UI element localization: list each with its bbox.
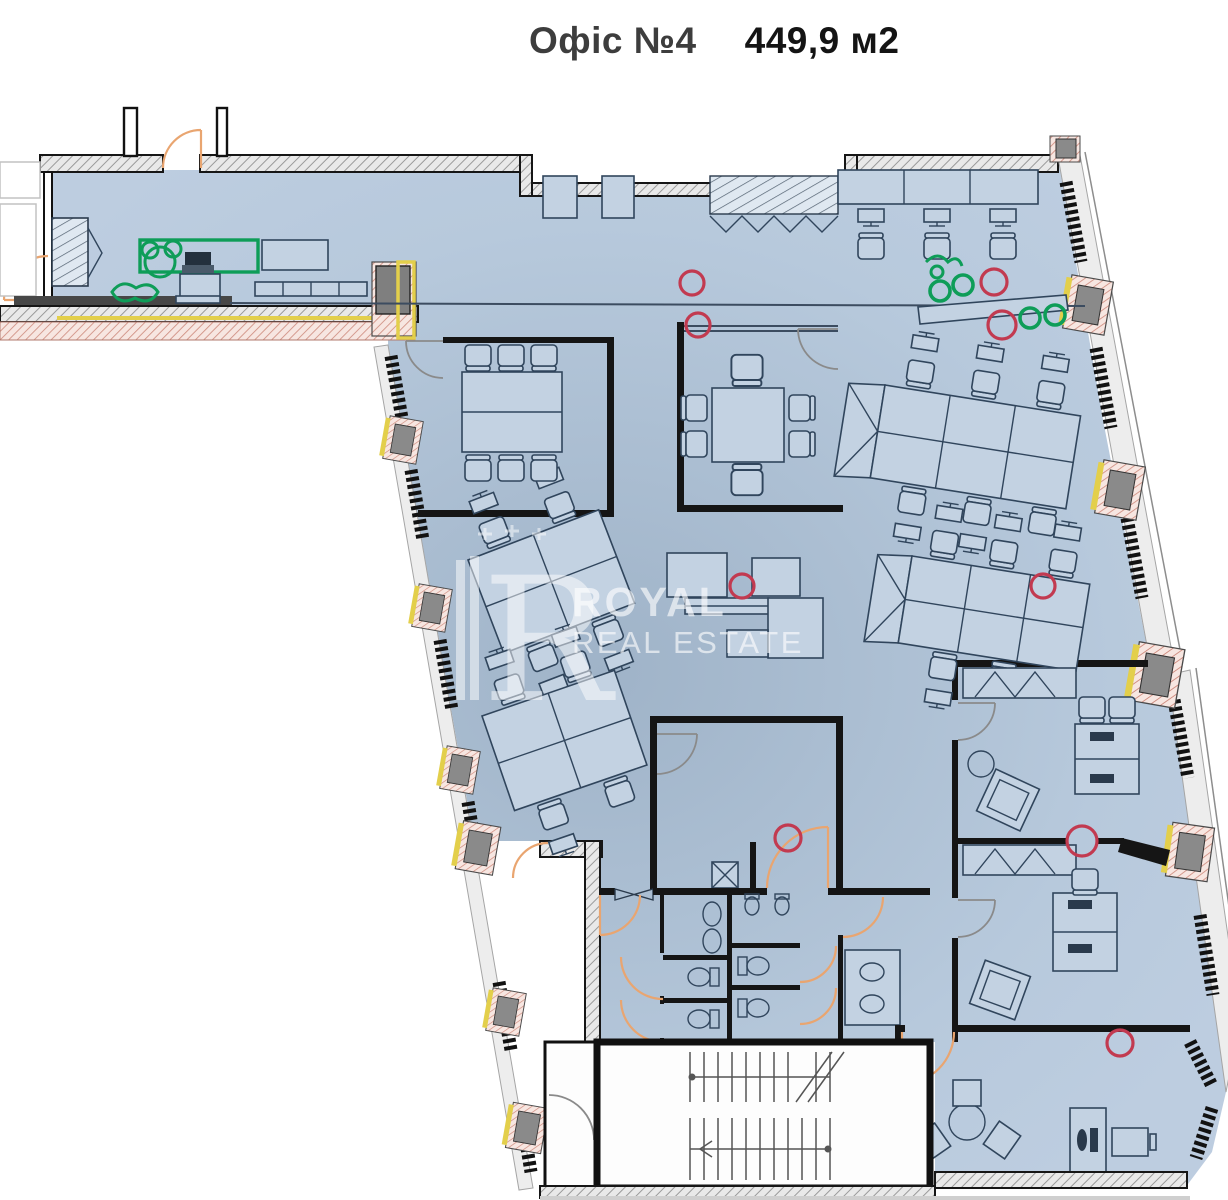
watermark-brand-bottom: REAL ESTATE xyxy=(572,625,804,660)
open-office-top-row xyxy=(838,170,1038,259)
meeting-room-1-furniture xyxy=(462,345,562,481)
floor-plan-drawing: R ROYAL REAL ESTATE xyxy=(0,0,1228,1200)
watermark-brand-top: ROYAL xyxy=(572,579,727,625)
floor-plan-page: Офіс №4 449,9 м2 xyxy=(0,0,1228,1200)
